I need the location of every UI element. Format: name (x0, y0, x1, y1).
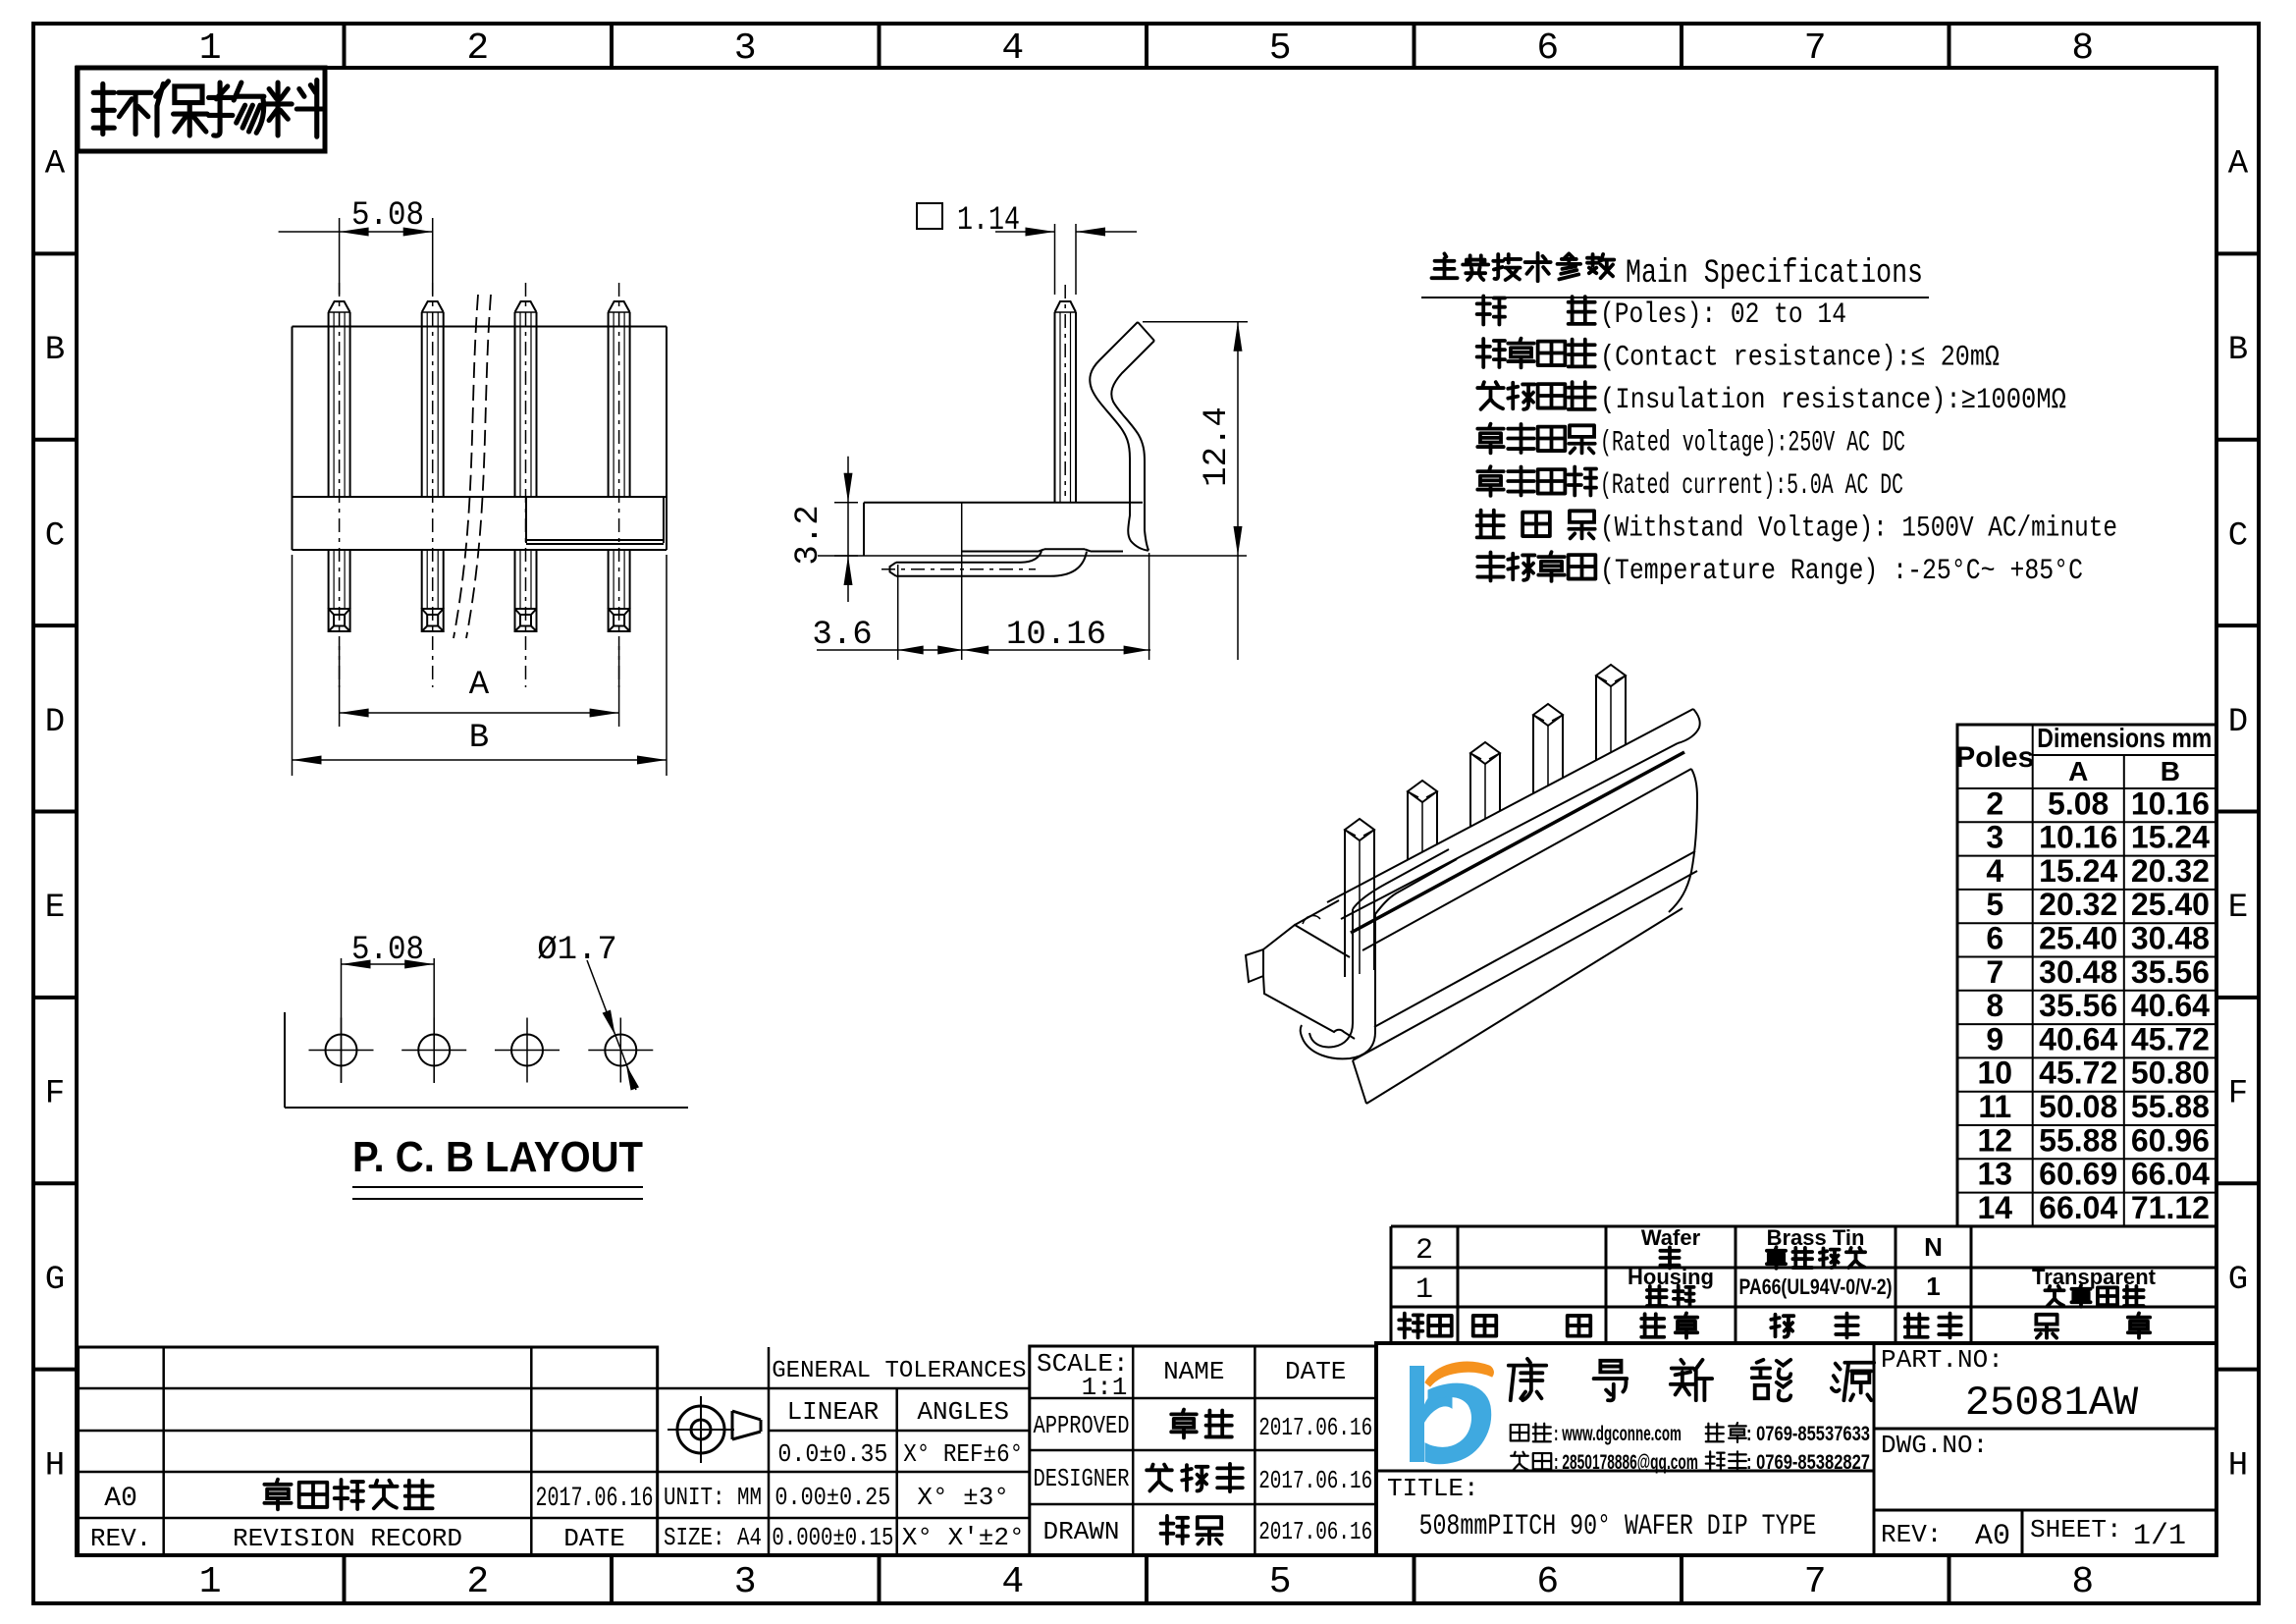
svg-text:F: F (45, 1076, 65, 1113)
svg-text:60.96: 60.96 (2131, 1122, 2210, 1158)
svg-text:30.48: 30.48 (2039, 954, 2117, 990)
svg-text:3: 3 (734, 1561, 757, 1603)
svg-text:B: B (2161, 756, 2180, 786)
svg-text:Ø1.7: Ø1.7 (537, 932, 617, 969)
svg-text:DWG.NO:: DWG.NO: (1881, 1431, 1988, 1460)
svg-text:10.16: 10.16 (1006, 617, 1106, 654)
svg-text:55.88: 55.88 (2131, 1089, 2210, 1124)
svg-text:14: 14 (1978, 1190, 2013, 1225)
svg-text:: 0769-85382827: : 0769-85382827 (1746, 1451, 1870, 1474)
svg-text:SIZE: A4: SIZE: A4 (664, 1523, 762, 1552)
svg-text:GENERAL TOLERANCES: GENERAL TOLERANCES (772, 1358, 1026, 1384)
svg-text:PA66(UL94V-0/V-2): PA66(UL94V-0/V-2) (1739, 1274, 1893, 1299)
svg-text:DATE: DATE (1285, 1357, 1346, 1386)
svg-text:55.88: 55.88 (2039, 1122, 2117, 1158)
svg-text:A: A (2228, 146, 2249, 184)
svg-text:UNIT: MM: UNIT: MM (664, 1483, 762, 1512)
svg-text:X° ±3°: X° ±3° (917, 1483, 1009, 1512)
svg-text:3.6: 3.6 (812, 617, 872, 654)
svg-text:A: A (45, 146, 66, 184)
svg-text:0.000±0.15: 0.000±0.15 (772, 1523, 893, 1552)
svg-text:PART.NO:: PART.NO: (1881, 1345, 2003, 1375)
svg-text:2017.06.16: 2017.06.16 (1258, 1466, 1372, 1495)
svg-text:SHEET:: SHEET: (2030, 1515, 2122, 1544)
svg-text:Brass Tin: Brass Tin (1767, 1225, 1865, 1250)
svg-text:8: 8 (2071, 1561, 2094, 1603)
svg-text:50.08: 50.08 (2039, 1089, 2117, 1124)
svg-text:(Insulation resistance):≥1000M: (Insulation resistance):≥1000MΩ (1600, 384, 2066, 417)
svg-text:(Rated voltage):250V AC DC: (Rated voltage):250V AC DC (1600, 427, 1905, 460)
svg-text:: 2850178886@qq.com: : 2850178886@qq.com (1554, 1451, 1698, 1474)
svg-text:30.48: 30.48 (2131, 921, 2210, 956)
svg-text:A0: A0 (104, 1484, 137, 1514)
svg-text:25081AW: 25081AW (1965, 1380, 2139, 1427)
svg-text:5: 5 (1986, 887, 2003, 922)
svg-text:10.16: 10.16 (2131, 785, 2210, 821)
svg-text:REVISION RECORD: REVISION RECORD (233, 1524, 462, 1553)
svg-text:3: 3 (1986, 820, 2003, 855)
svg-text:X° X'±2°: X° X'±2° (902, 1523, 1025, 1552)
svg-text:12: 12 (1978, 1122, 2013, 1158)
svg-text:11: 11 (1978, 1089, 2011, 1124)
svg-text:7: 7 (1986, 954, 2003, 990)
svg-text:F: F (2228, 1076, 2248, 1113)
svg-text:5: 5 (1269, 27, 1292, 70)
svg-text:LINEAR: LINEAR (787, 1397, 880, 1427)
svg-text:40.64: 40.64 (2131, 988, 2210, 1023)
svg-text:2: 2 (1986, 785, 2003, 821)
svg-text:1: 1 (1926, 1272, 1940, 1301)
svg-text:5.08: 5.08 (351, 932, 424, 969)
svg-text:45.72: 45.72 (2039, 1056, 2117, 1091)
svg-text:3: 3 (734, 27, 757, 70)
svg-text:Poles: Poles (1955, 741, 2034, 774)
svg-text:5.08: 5.08 (2048, 785, 2109, 821)
svg-text:: 0769-85537633: : 0769-85537633 (1746, 1423, 1870, 1445)
svg-text:A0: A0 (1975, 1520, 2010, 1553)
svg-text:Housing: Housing (1628, 1265, 1714, 1289)
svg-text:REV.: REV. (90, 1524, 151, 1553)
svg-text:13: 13 (1978, 1157, 2013, 1192)
svg-text:Dimensions mm: Dimensions mm (2037, 723, 2212, 753)
svg-text:6: 6 (1986, 921, 2003, 956)
svg-text:20.32: 20.32 (2131, 853, 2210, 889)
svg-text:5.08: 5.08 (351, 197, 424, 235)
svg-text:15.24: 15.24 (2039, 853, 2117, 889)
svg-text:10: 10 (1978, 1056, 2013, 1091)
svg-text:Main Specifications: Main Specifications (1626, 255, 1923, 293)
svg-text:DESIGNER: DESIGNER (1034, 1464, 1130, 1493)
svg-text:(Poles): 02 to 14: (Poles): 02 to 14 (1600, 298, 1846, 332)
svg-text:B: B (2228, 332, 2248, 369)
svg-text:: www.dgconne.com: : www.dgconne.com (1554, 1423, 1682, 1445)
svg-text:20.32: 20.32 (2039, 887, 2117, 922)
svg-text:TITLE:: TITLE: (1387, 1474, 1479, 1503)
svg-text:25.40: 25.40 (2039, 921, 2117, 956)
svg-text:40.64: 40.64 (2039, 1021, 2117, 1056)
svg-text:2: 2 (466, 27, 489, 70)
svg-text:1:1: 1:1 (1082, 1373, 1128, 1402)
svg-text:H: H (2228, 1447, 2248, 1485)
svg-text:1.14: 1.14 (957, 202, 1020, 240)
svg-text:2017.06.16: 2017.06.16 (1258, 1517, 1372, 1546)
svg-text:ANGLES: ANGLES (917, 1397, 1009, 1427)
svg-text:6: 6 (1536, 27, 1559, 70)
svg-text:1: 1 (1415, 1273, 1433, 1307)
svg-text:1: 1 (199, 1561, 222, 1603)
svg-text:DATE: DATE (563, 1524, 624, 1553)
svg-text:2017.06.16: 2017.06.16 (536, 1484, 654, 1514)
svg-text:B: B (469, 720, 489, 757)
svg-text:9: 9 (1986, 1021, 2003, 1056)
svg-text:D: D (45, 704, 65, 741)
svg-text:REV:: REV: (1881, 1520, 1942, 1549)
svg-text:(Rated current):5.0A AC DC: (Rated current):5.0A AC DC (1600, 469, 1903, 503)
svg-text:C: C (2228, 517, 2248, 555)
svg-text:66.04: 66.04 (2039, 1190, 2117, 1225)
svg-text:C: C (45, 517, 65, 555)
svg-text:71.12: 71.12 (2131, 1190, 2210, 1225)
svg-text:1: 1 (199, 27, 222, 70)
svg-text:7: 7 (1804, 1561, 1827, 1603)
svg-text:G: G (45, 1262, 65, 1299)
svg-text:0.00±0.25: 0.00±0.25 (774, 1483, 890, 1512)
svg-text:N: N (1924, 1232, 1943, 1262)
svg-text:7: 7 (1804, 27, 1827, 70)
svg-text:8: 8 (2071, 27, 2094, 70)
svg-text:0.0±0.35: 0.0±0.35 (777, 1439, 887, 1469)
svg-text:D: D (2228, 704, 2248, 741)
svg-text:(Temperature Range) :-25°C~ +8: (Temperature Range) :-25°C~ +85°C (1600, 555, 2083, 588)
svg-text:35.56: 35.56 (2039, 988, 2117, 1023)
svg-text:P. C. B LAYOUT: P. C. B LAYOUT (352, 1133, 643, 1181)
svg-text:(Withstand Voltage): 1500V AC/: (Withstand Voltage): 1500V AC/minute (1600, 513, 2117, 546)
svg-text:12.4: 12.4 (1199, 406, 1236, 487)
svg-text:8: 8 (1986, 988, 2003, 1023)
svg-text:4: 4 (1001, 1561, 1024, 1603)
svg-text:E: E (2228, 890, 2248, 927)
svg-text:(Contact resistance):≤ 20mΩ: (Contact resistance):≤ 20mΩ (1600, 342, 2000, 375)
svg-text:NAME: NAME (1163, 1357, 1224, 1386)
svg-text:508mmPITCH 90° WAFER DIP TYPE: 508mmPITCH 90° WAFER DIP TYPE (1419, 1510, 1817, 1543)
svg-text:A: A (2068, 756, 2088, 786)
svg-text:10.16: 10.16 (2039, 820, 2117, 855)
svg-text:B: B (45, 332, 65, 369)
svg-text:G: G (2228, 1262, 2248, 1299)
svg-text:APPROVED: APPROVED (1034, 1411, 1130, 1440)
svg-text:3.2: 3.2 (790, 505, 828, 565)
svg-text:H: H (45, 1447, 65, 1485)
svg-text:60.69: 60.69 (2039, 1157, 2117, 1192)
svg-text:1/1: 1/1 (2133, 1520, 2186, 1553)
svg-text:E: E (45, 890, 65, 927)
svg-text:66.04: 66.04 (2131, 1157, 2210, 1192)
svg-text:6: 6 (1536, 1561, 1559, 1603)
svg-text:2017.06.16: 2017.06.16 (1258, 1413, 1372, 1442)
svg-text:DRAWN: DRAWN (1042, 1517, 1119, 1546)
svg-text:45.72: 45.72 (2131, 1021, 2210, 1056)
svg-text:50.80: 50.80 (2131, 1056, 2210, 1091)
svg-text:A: A (469, 667, 490, 704)
svg-text:2: 2 (1415, 1234, 1433, 1268)
svg-text:4: 4 (1001, 27, 1024, 70)
svg-text:2: 2 (466, 1561, 489, 1603)
svg-text:25.40: 25.40 (2131, 887, 2210, 922)
svg-text:X° REF±6°: X° REF±6° (903, 1439, 1023, 1469)
svg-text:35.56: 35.56 (2131, 954, 2210, 990)
svg-text:5: 5 (1269, 1561, 1292, 1603)
svg-text:15.24: 15.24 (2131, 820, 2210, 855)
svg-text:4: 4 (1986, 853, 2003, 889)
